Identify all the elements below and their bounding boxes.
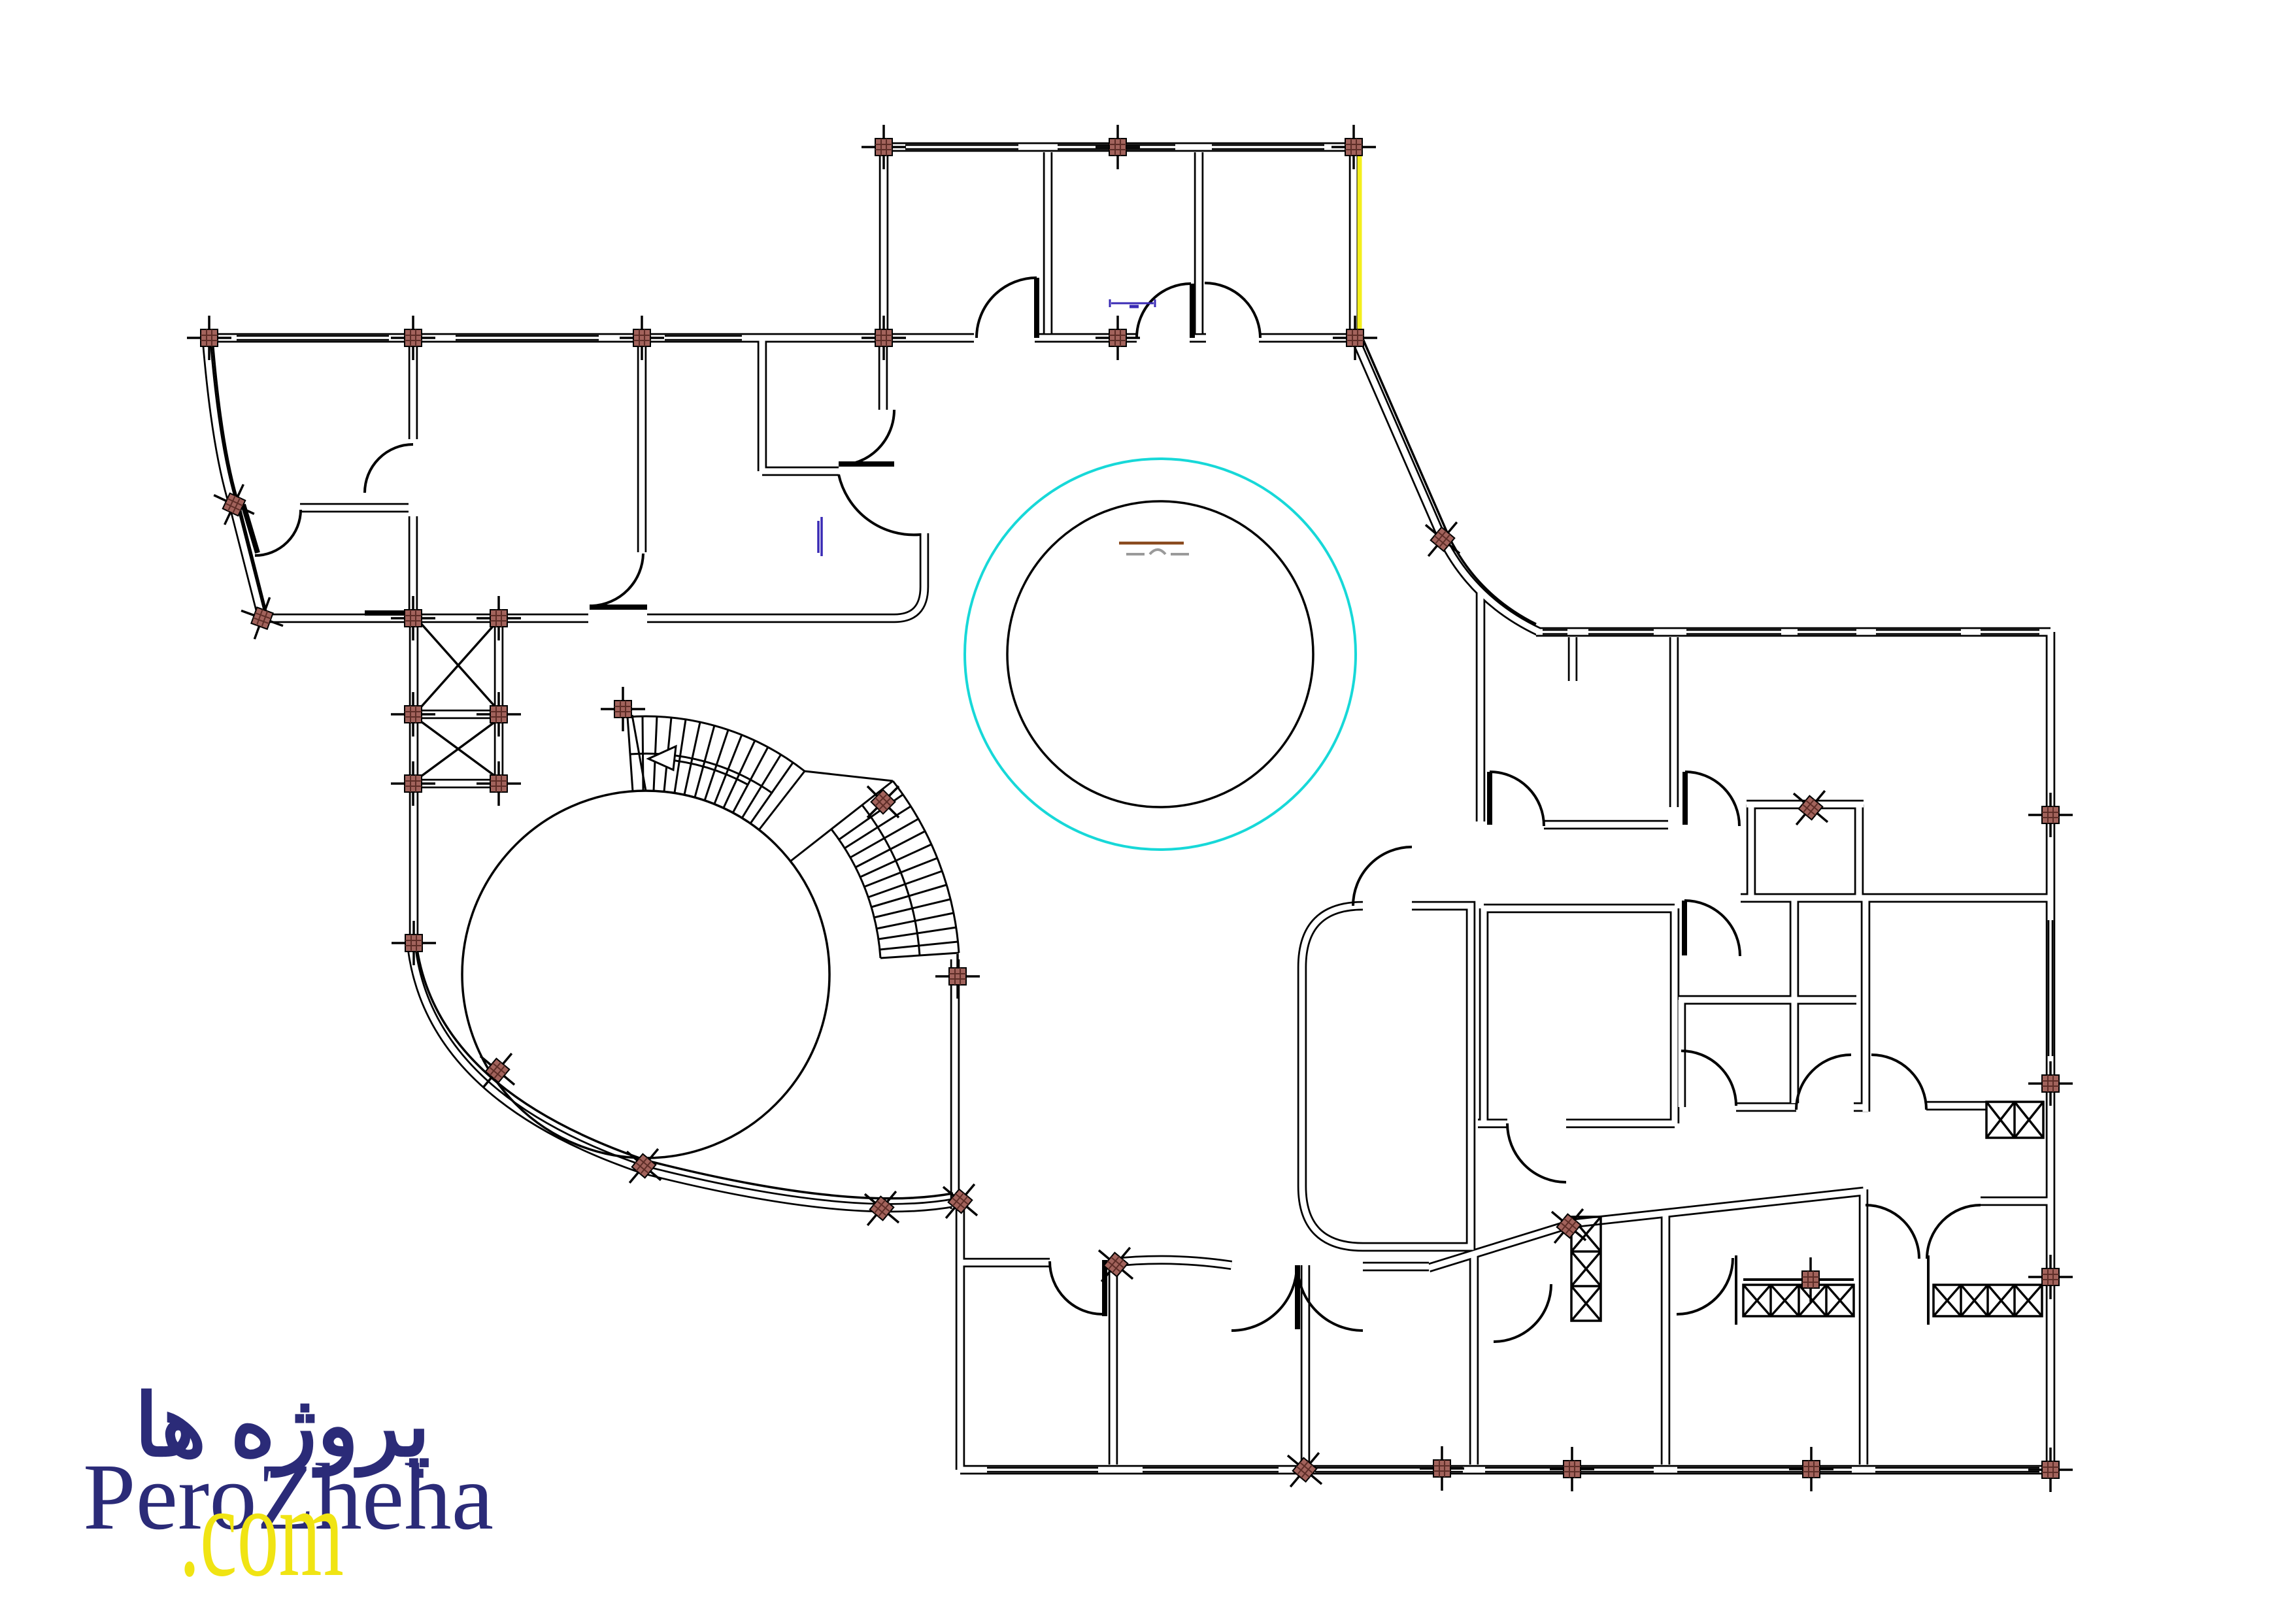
svg-text:.com: .com (179, 1459, 344, 1604)
